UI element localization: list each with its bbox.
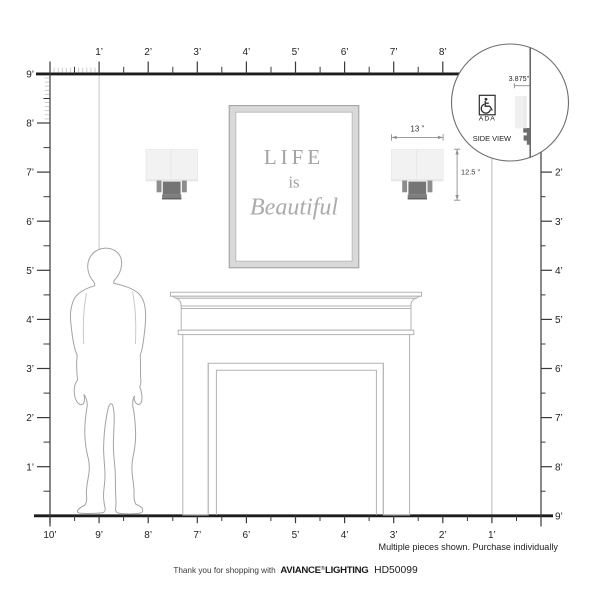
svg-text:9’: 9’ (95, 530, 103, 541)
svg-text:7’: 7’ (555, 413, 563, 424)
svg-text:LIFE: LIFE (264, 145, 324, 169)
svg-text:3’: 3’ (193, 47, 201, 58)
svg-text:1’: 1’ (488, 530, 496, 541)
svg-text:8’: 8’ (144, 530, 152, 541)
svg-text:4’: 4’ (243, 47, 251, 58)
svg-text:4’: 4’ (555, 266, 563, 277)
svg-text:3’: 3’ (26, 364, 34, 375)
svg-text:7’: 7’ (390, 47, 398, 58)
svg-text:8’: 8’ (26, 119, 34, 130)
svg-text:7’: 7’ (26, 168, 34, 179)
svg-text:4’: 4’ (26, 315, 34, 326)
svg-text:3’: 3’ (555, 217, 563, 228)
svg-text:3’: 3’ (390, 530, 398, 541)
svg-text:9’: 9’ (26, 70, 34, 81)
svg-text:6’: 6’ (341, 47, 349, 58)
svg-text:9’: 9’ (555, 511, 563, 522)
svg-text:2’: 2’ (26, 413, 34, 424)
svg-text:8’: 8’ (555, 462, 563, 473)
svg-text:1’: 1’ (26, 462, 34, 473)
svg-text:7’: 7’ (193, 530, 201, 541)
svg-text:10’: 10’ (43, 530, 56, 541)
svg-text:6’: 6’ (26, 217, 34, 228)
svg-text:6’: 6’ (555, 364, 563, 375)
svg-text:5’: 5’ (292, 47, 300, 58)
svg-text:6’: 6’ (243, 530, 251, 541)
svg-text:5’: 5’ (555, 315, 563, 326)
svg-text:is: is (288, 173, 299, 192)
svg-text:13 ”: 13 ” (410, 124, 424, 133)
svg-text:5’: 5’ (26, 266, 34, 277)
svg-text:2’: 2’ (439, 530, 447, 541)
svg-text:3.875”: 3.875” (509, 74, 530, 83)
svg-text:ADA: ADA (479, 116, 496, 123)
svg-text:8’: 8’ (439, 47, 447, 58)
svg-text:Beautiful: Beautiful (250, 195, 338, 221)
svg-text:1’: 1’ (95, 47, 103, 58)
svg-text:5’: 5’ (292, 530, 300, 541)
svg-text:2’: 2’ (144, 47, 152, 58)
svg-text:2’: 2’ (555, 168, 563, 179)
svg-text:SIDE VIEW: SIDE VIEW (473, 134, 511, 143)
svg-text:Thank you for shopping with A: Thank you for shopping with AVIANCE®LIGH… (173, 565, 418, 576)
svg-text:12.5 ”: 12.5 ” (461, 168, 480, 177)
svg-text:Multiple pieces shown. Purcha: Multiple pieces shown. Purchase individu… (379, 542, 559, 552)
svg-text:4’: 4’ (341, 530, 349, 541)
